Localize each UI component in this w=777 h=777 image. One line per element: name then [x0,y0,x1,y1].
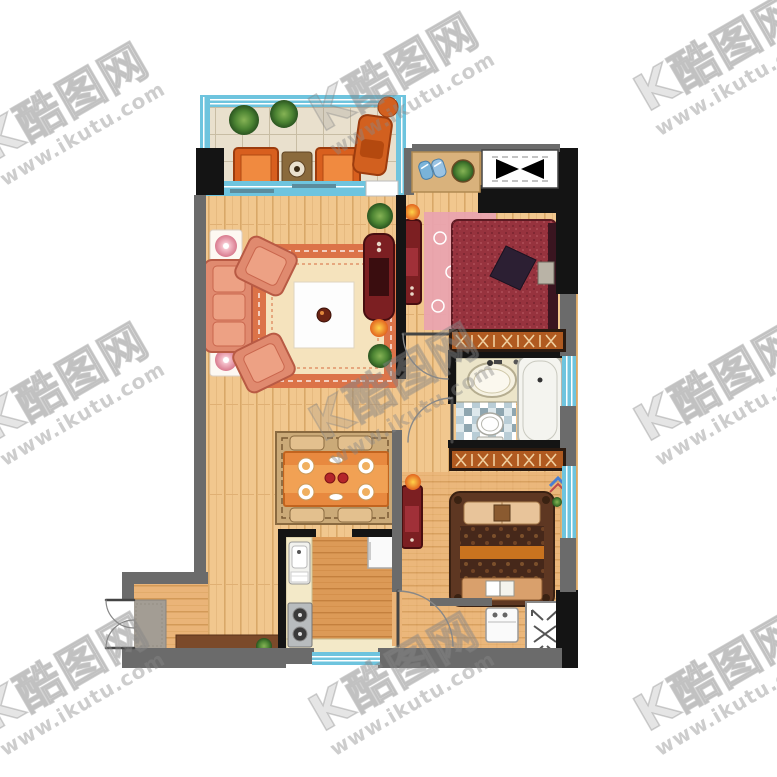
master-bed-tray [538,262,554,284]
dining-area [276,432,394,524]
second-bed [450,492,554,606]
balcony-pouf [378,97,398,117]
bathtub [518,356,562,446]
master-bed [452,220,558,332]
side-table-lamp-top [210,230,242,262]
flowers-cabinet [405,474,421,490]
entry-double-door [106,600,134,648]
flowers-dresser [404,204,420,220]
wardrobe-strip-1 [449,329,566,352]
balcony [200,95,406,196]
plant-tv-bottom [368,344,392,368]
elevator-icon [482,150,558,188]
washing-machine [486,608,518,642]
tv-cabinet [364,234,394,320]
second-bed-stripe [460,546,544,559]
dining-table [284,452,388,506]
flowers-tv [370,319,388,337]
second-bed-box [494,505,510,521]
kitchen-stove [288,603,312,647]
floorplan-image: K酷图网www.ikutu.com K酷图网www.ikutu.com K酷图网… [0,0,777,777]
kitchen-window [312,652,380,665]
coffee-table [294,282,354,348]
balcony-lounge-chair [352,114,393,176]
hall-console [412,152,480,192]
floorplan-drawing [0,0,777,777]
balcony-plant-1 [229,105,259,135]
balcony-door-fixed-panel [366,181,398,196]
balcony-side-table [282,152,312,186]
balcony-sliding-door [206,181,366,196]
bathroom-window [562,356,576,406]
plant-tv-top [367,203,393,229]
balcony-plant-2 [270,100,298,128]
wardrobe-strip-2 [449,448,566,471]
second-bedroom-window [562,466,576,538]
kitchen-sink [289,542,310,584]
master-bedroom [403,204,558,332]
balcony-window-top [200,95,406,107]
doormat [132,600,166,650]
second-bedroom-cabinet [402,486,422,548]
bathroom [456,356,562,446]
